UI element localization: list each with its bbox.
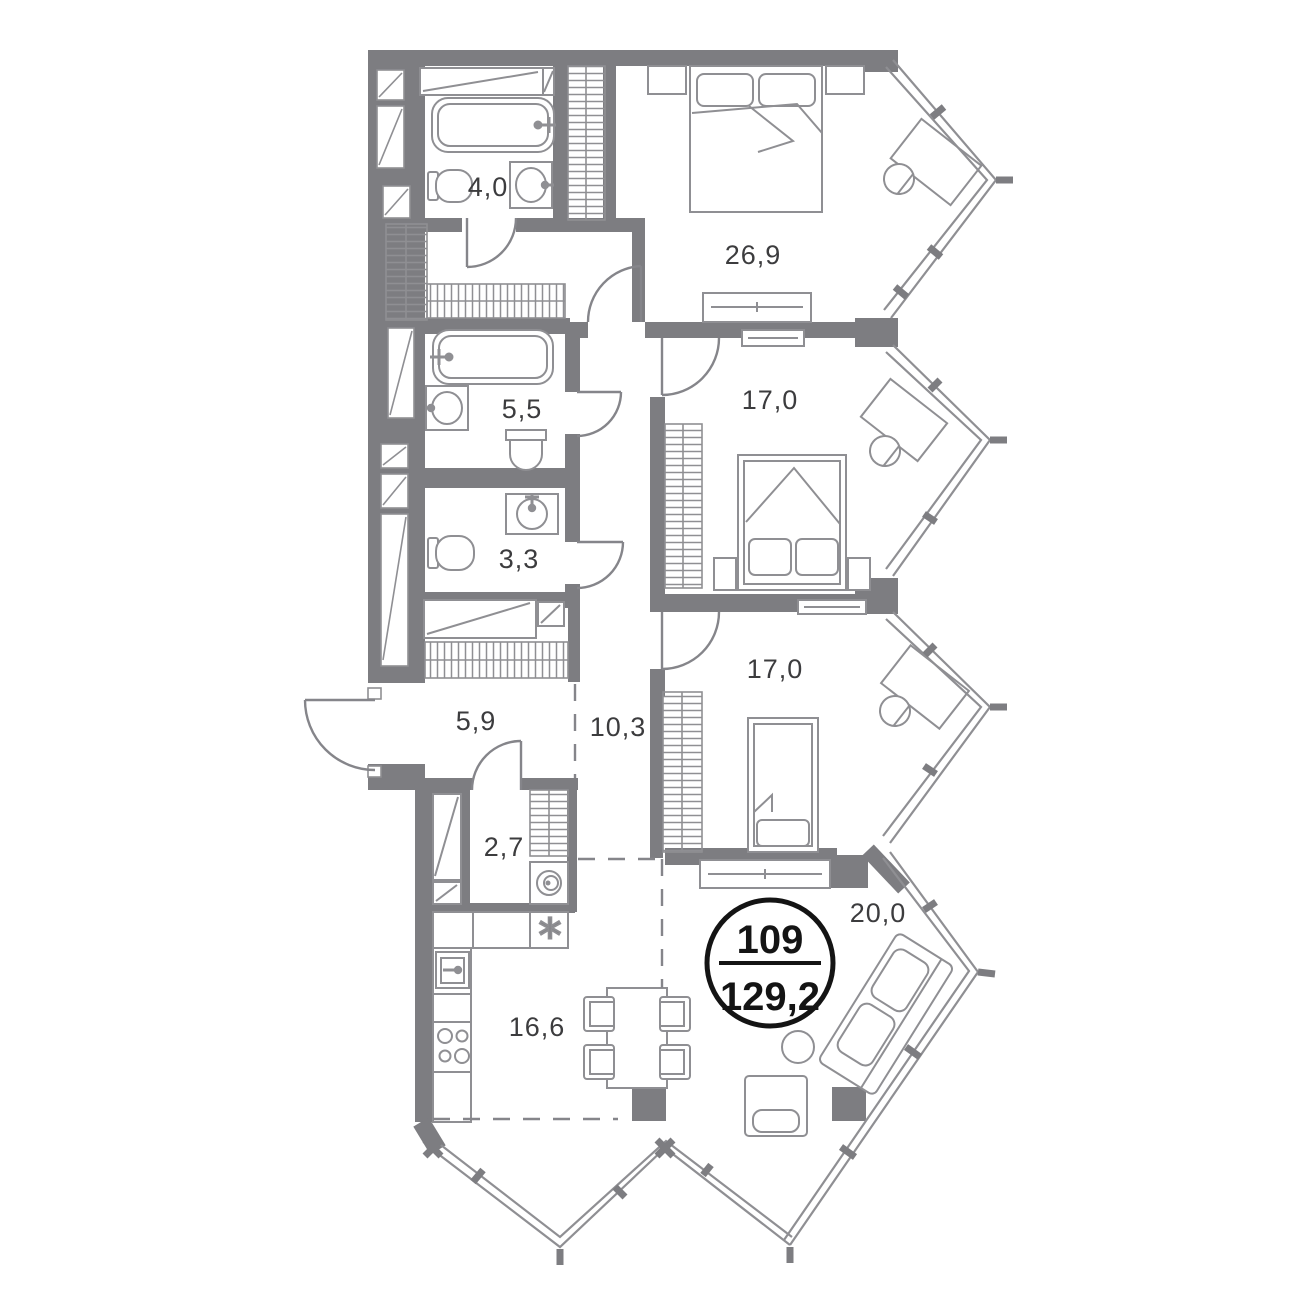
door-arc	[577, 542, 623, 588]
shelf-icon	[420, 68, 554, 95]
bedroom-3-furniture	[748, 600, 969, 852]
sink-icon	[510, 162, 554, 208]
kitchen-sink-icon	[436, 952, 469, 988]
washing-machine-icon	[530, 862, 568, 904]
total-area-label: 129,2	[720, 975, 820, 1019]
nightstand	[848, 558, 870, 590]
toilet-icon	[428, 170, 472, 202]
single-bed-icon	[748, 718, 818, 852]
entrance-door-arc	[305, 700, 375, 770]
sink-icon	[426, 386, 468, 430]
room-label-utility: 2,7	[484, 832, 525, 862]
floor-plan-page: *	[0, 0, 1300, 1300]
sofa-icon	[818, 932, 955, 1096]
dresser-icon	[703, 293, 811, 322]
fridge-symbol: *	[539, 909, 562, 963]
room-label-bedroom-2: 17,0	[742, 385, 799, 415]
armchair-icon	[745, 1076, 807, 1136]
double-bed-icon	[738, 455, 846, 590]
nightstand	[648, 66, 686, 94]
room-label-living-room: 20,0	[850, 898, 907, 928]
room-label-bedroom-3: 17,0	[747, 654, 804, 684]
closet-icon	[433, 794, 461, 904]
dining-chair-icon	[584, 1045, 614, 1079]
double-bed-icon	[690, 66, 822, 212]
bench-icon	[424, 600, 536, 638]
bathtub-icon	[432, 98, 556, 152]
door-arc	[577, 392, 621, 436]
dining-chair-icon	[660, 1045, 690, 1079]
room-label-bathroom-1: 4,0	[468, 172, 509, 202]
unit-badge: 109 129,2	[707, 900, 833, 1026]
room-label-kitchen: 16,6	[509, 1012, 566, 1042]
radiator	[798, 600, 866, 614]
door-arc	[472, 741, 521, 790]
room-label-corridor: 10,3	[590, 712, 647, 742]
floor-plan-svg: *	[0, 0, 1300, 1300]
dining-chair-icon	[660, 997, 690, 1031]
bathtub-icon	[430, 330, 553, 384]
nightstand	[826, 66, 864, 94]
room-label-bedroom-1: 26,9	[725, 240, 782, 270]
toilet-icon	[506, 430, 546, 470]
nightstand	[714, 558, 736, 590]
bay-window	[433, 1141, 792, 1247]
door-arc	[467, 218, 516, 267]
closet-door-icon	[538, 602, 564, 626]
room-label-wc: 3,3	[499, 544, 540, 574]
dining-chair-icon	[584, 997, 614, 1031]
door-arc	[662, 612, 719, 669]
room-label-hallway: 5,9	[456, 706, 497, 736]
dining-table-icon	[607, 988, 667, 1088]
door-arc	[662, 338, 719, 395]
unit-number-label: 109	[737, 918, 804, 962]
radiator	[742, 330, 804, 346]
tv-console-icon	[700, 860, 830, 888]
sink-icon	[506, 494, 558, 534]
toilet-icon	[428, 536, 474, 570]
room-label-bathroom-2: 5,5	[502, 394, 543, 424]
coffee-table-icon	[782, 1031, 814, 1063]
